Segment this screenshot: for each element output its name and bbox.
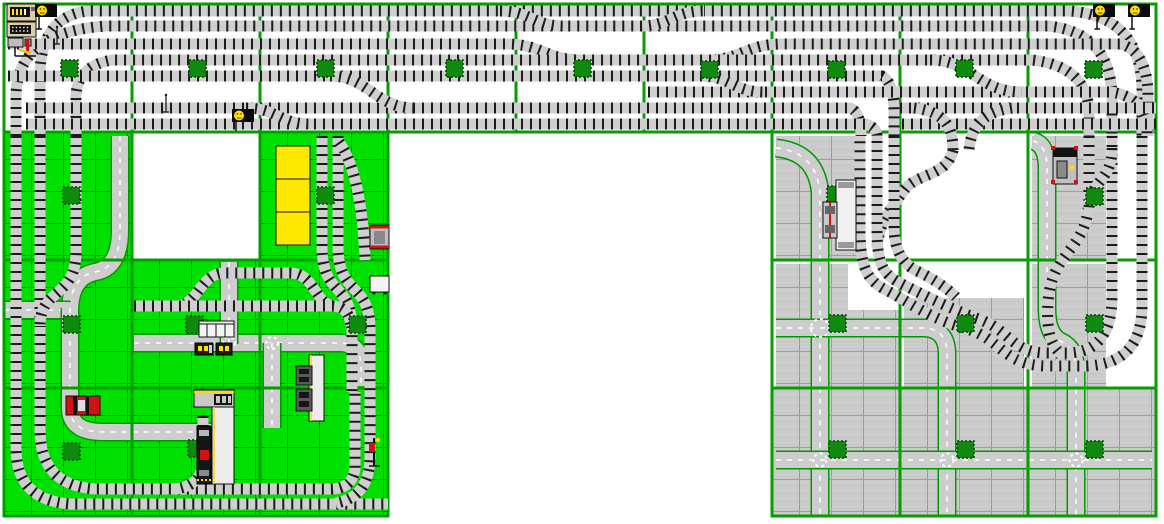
railcar-1[interactable] bbox=[296, 366, 312, 385]
tree-icon[interactable] bbox=[349, 316, 366, 333]
goods-cart[interactable] bbox=[370, 276, 389, 295]
layout-canvas[interactable] bbox=[0, 0, 1164, 524]
crossing-keeper-box[interactable] bbox=[1051, 146, 1078, 184]
tree-icon[interactable] bbox=[956, 60, 973, 77]
tree-icon[interactable] bbox=[701, 61, 718, 78]
tree-icon[interactable] bbox=[829, 315, 846, 332]
tree-icon[interactable] bbox=[828, 61, 845, 78]
tree-icon[interactable] bbox=[1086, 441, 1103, 458]
tree-icon[interactable] bbox=[957, 315, 974, 332]
tree-icon[interactable] bbox=[1086, 315, 1103, 332]
station-platform-left[interactable] bbox=[212, 407, 234, 484]
station-platform-right[interactable] bbox=[836, 180, 856, 250]
minibus-1[interactable] bbox=[195, 343, 213, 355]
tree-icon[interactable] bbox=[1085, 61, 1102, 78]
bus-shelter[interactable] bbox=[199, 321, 234, 337]
tree-icon[interactable] bbox=[317, 187, 334, 204]
tree-icon[interactable] bbox=[63, 187, 80, 204]
transformer[interactable] bbox=[7, 22, 36, 37]
speed-controller[interactable] bbox=[7, 4, 36, 21]
tree-icon[interactable] bbox=[61, 60, 78, 77]
tree-icon[interactable] bbox=[957, 441, 974, 458]
tree-icon[interactable] bbox=[317, 60, 334, 77]
tree-icon[interactable] bbox=[446, 60, 463, 77]
tree-icon[interactable] bbox=[1086, 188, 1103, 205]
tree-icon[interactable] bbox=[63, 316, 80, 333]
tree-icon[interactable] bbox=[574, 60, 591, 77]
minibus-2[interactable] bbox=[216, 343, 232, 355]
layout-drawing bbox=[0, 0, 1164, 524]
signal-box-red[interactable] bbox=[370, 225, 389, 249]
fire-truck[interactable] bbox=[66, 396, 100, 415]
tree-icon[interactable] bbox=[829, 441, 846, 458]
locomotive[interactable] bbox=[197, 426, 211, 484]
railcar-2[interactable] bbox=[296, 389, 312, 411]
plate-white-1-1 bbox=[132, 132, 260, 260]
tree-icon[interactable] bbox=[63, 443, 80, 460]
plate-white-7-1 bbox=[900, 132, 1028, 260]
tree-icon[interactable] bbox=[189, 60, 206, 77]
bus-right[interactable] bbox=[823, 202, 837, 238]
station-building-left[interactable] bbox=[194, 390, 234, 407]
yellow-building[interactable] bbox=[276, 146, 310, 245]
